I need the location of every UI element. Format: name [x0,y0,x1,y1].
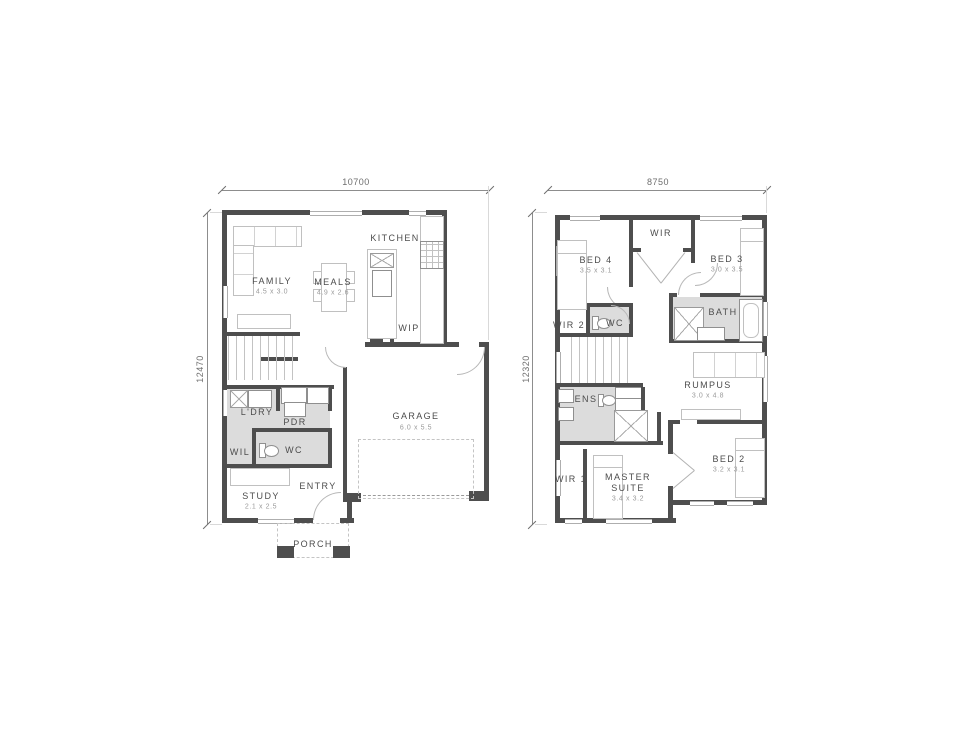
window [700,216,742,221]
window [727,501,753,506]
extension-line [535,212,547,213]
room-size-bed3: 3.0 x 3.5 [711,267,743,274]
room-label-ens: ENS [575,394,598,404]
extension-line [535,524,547,525]
stairs [571,337,629,383]
window [570,216,600,221]
room-label-bath: BATH [709,307,738,317]
wall [668,420,680,424]
basin-icon [558,407,574,421]
pillow-icon [557,240,587,254]
wall [641,387,645,412]
room-size-master: 3.4 x 3.2 [612,496,644,503]
window [556,352,561,384]
room-label-bed2: BED 2 [712,454,745,464]
dimension-width-label: 8750 [647,177,669,187]
window [690,501,714,506]
pillow-icon [740,228,764,242]
window [763,302,768,336]
basin-icon [558,389,574,403]
room-label-wir2: WIR 2 [553,320,585,330]
tv-unit-icon [681,409,741,420]
room-label-master: MASTER SUITE [597,472,659,495]
wall [629,248,641,252]
room-size-rumpus: 3.0 x 4.8 [692,393,724,400]
room-size-bed4: 3.5 x 3.1 [580,268,612,275]
wall [668,420,673,454]
dimension-line-left [532,213,533,525]
room-label-wir1: WIR 1 [555,474,587,484]
window [606,519,652,524]
wall [697,420,767,424]
toilet-icon [602,395,616,406]
dimension-height-label: 12320 [521,355,531,383]
wall [691,215,695,263]
window [565,519,582,524]
room-size-bed2: 3.2 x 3.1 [713,467,745,474]
extension-line [766,186,767,213]
pillow-icon [593,455,623,468]
shower-icon [614,410,648,442]
pillow-icon [735,438,765,451]
double-door-icon [673,470,695,489]
door-arc-icon [678,272,701,295]
bathtub-icon [743,303,759,338]
room-label-bed4: BED 4 [579,255,612,265]
wall [668,486,673,523]
double-door-icon [661,252,686,283]
floor-plan-sheet: 10700 12470 [0,0,960,753]
dimension-line-top [548,190,767,191]
double-door-icon [637,252,662,283]
wall [657,412,661,445]
double-door-icon [673,452,695,471]
wall [600,215,700,220]
vanity-icon [697,327,725,341]
first-floor-plan: 8750 12320 [0,0,960,753]
room-label-wc: WC [606,318,624,328]
room-label-rumpus: RUMPUS [684,380,731,390]
room-label-wir: WIR [650,228,672,238]
sofa-icon [693,352,765,378]
room-label-bed3: BED 3 [710,254,743,264]
